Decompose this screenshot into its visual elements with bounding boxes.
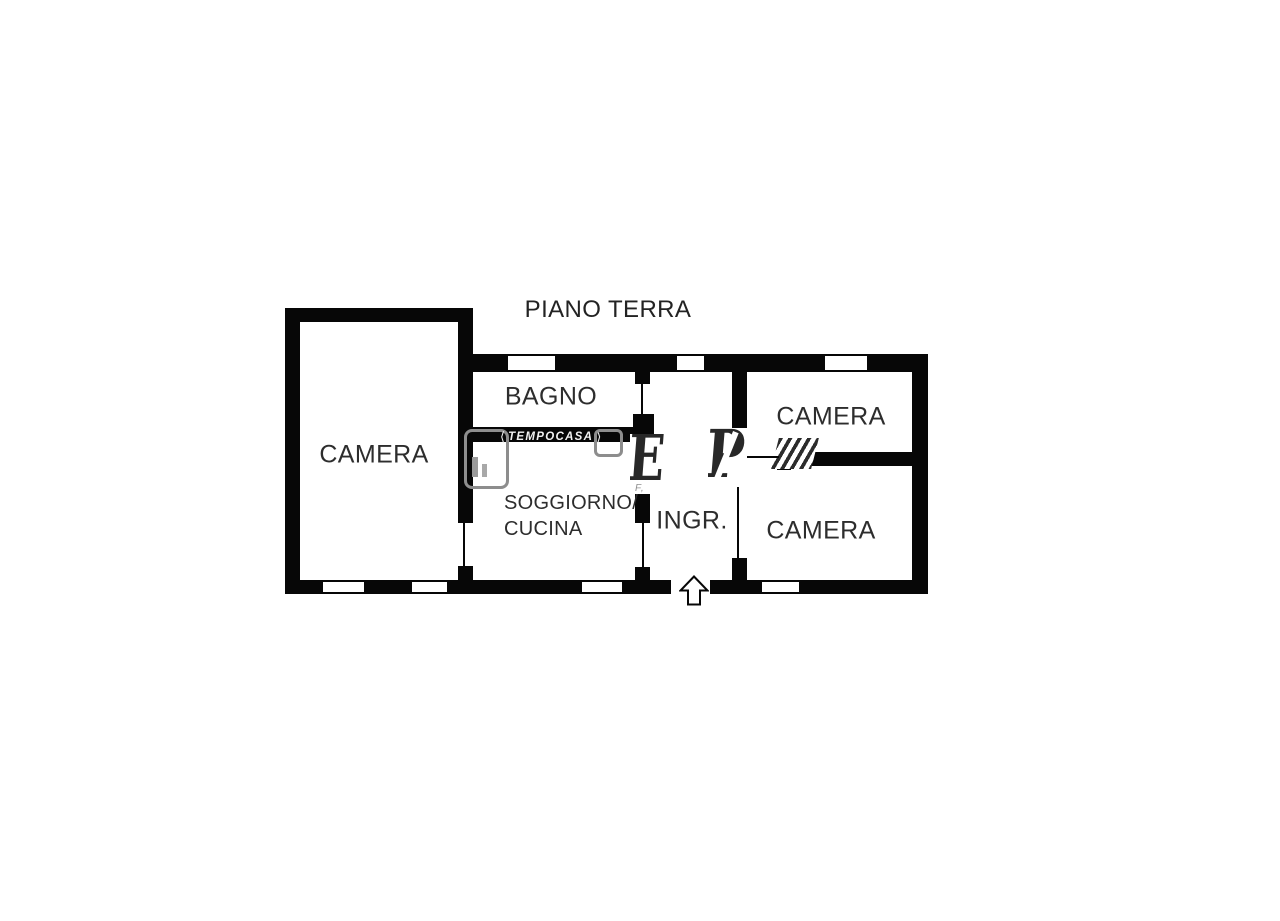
wall-outer-left [285,308,300,594]
door-camera-left [463,523,465,567]
tempocasa-logo-mark [482,464,487,477]
door-camera-bottom-right [737,487,739,559]
room-label-camera-top-right: CAMERA [776,403,885,432]
room-label-camera-bottom-right: CAMERA [766,517,875,546]
room-label-bagno: BAGNO [505,383,597,412]
wall-ingresso-right-bottom [732,558,747,594]
wordmark-text: TEMPOCASA [508,431,593,443]
tempocasa-logo-frame-small [594,429,623,457]
tempocasa-wordmark: ⟨ TEMPOCASA ⟩ [500,429,601,444]
door-camera-top-right [747,456,779,458]
window-ingresso-top [675,354,706,372]
wall-camera-right-lower [458,566,473,594]
wall-ingresso-left-bottom [635,567,650,594]
window-camera-bottom-right [760,580,801,594]
room-label-soggiorno-line2: CUCINA [504,516,638,542]
wordmark-chevron-left-icon: ⟨ [500,430,505,443]
floorplan: PIANO TERRA ⟨ TEMPOCASA ⟩ E F, [0,0,1280,921]
door-soggiorno [642,523,644,569]
room-label-soggiorno-cucina: SOGGIORNO/ CUCINA [504,490,638,542]
watermark-big-letter-e: E F, [630,434,671,494]
wall-camera-right-upper [458,308,473,523]
room-label-camera-left: CAMERA [319,441,428,470]
window-soggiorno [580,580,624,594]
room-label-ingresso: INGR. [656,507,727,536]
wall-camera-top [285,308,473,322]
watermark-letter: E [630,434,661,484]
window-camera-left-1 [321,580,366,594]
room-label-soggiorno-line1: SOGGIORNO/ [504,490,638,516]
window-camera-left-2 [410,580,449,594]
entrance-arrow-icon [679,575,709,606]
window-camera-top-right [823,354,869,372]
wall-outer-right [912,354,928,594]
plan-title: PIANO TERRA [525,296,692,324]
door-bagno [641,384,643,415]
watermark-hatch-fragment [771,438,819,469]
window-bagno [506,354,557,372]
wall-ingresso-left-stub [635,372,650,384]
tempocasa-logo-mark [472,457,478,477]
